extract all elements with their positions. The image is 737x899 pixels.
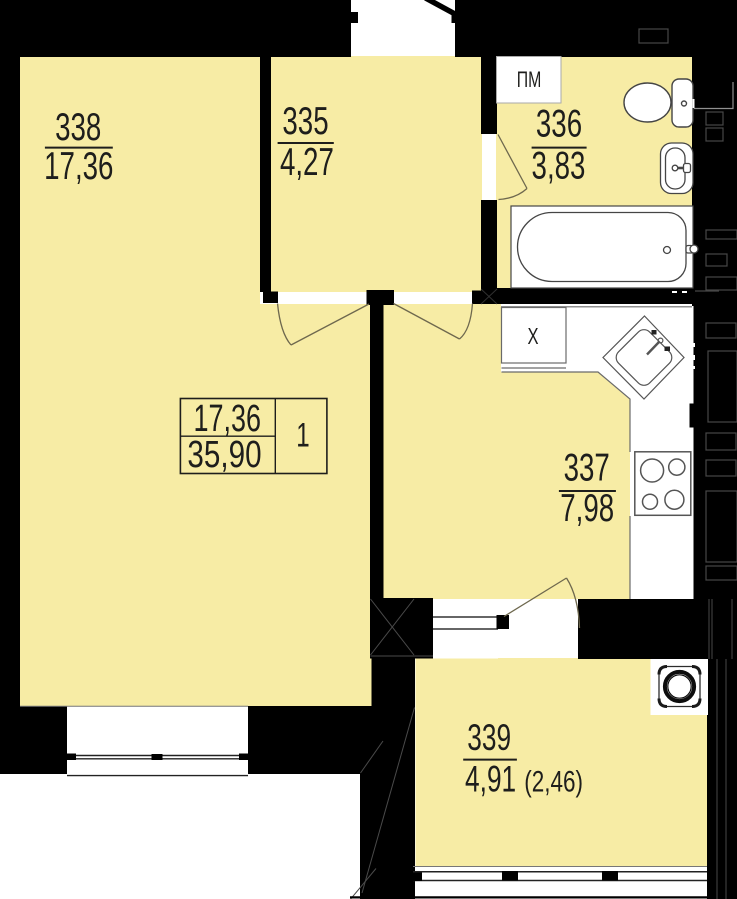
svg-text:X: X — [527, 324, 538, 349]
svg-text:ПМ: ПМ — [517, 69, 542, 93]
svg-text:1: 1 — [296, 417, 309, 455]
svg-text:339: 339 — [467, 717, 511, 759]
svg-text:337: 337 — [564, 446, 610, 490]
svg-text:3,83: 3,83 — [532, 144, 586, 188]
svg-text:7,98: 7,98 — [560, 487, 614, 531]
svg-text:17,36: 17,36 — [44, 145, 113, 189]
svg-text:4,27: 4,27 — [280, 141, 334, 185]
svg-text:4,91: 4,91 — [465, 758, 516, 800]
svg-text:338: 338 — [55, 105, 101, 149]
svg-text:335: 335 — [282, 99, 328, 143]
svg-text:35,90: 35,90 — [187, 434, 261, 476]
svg-text:336: 336 — [536, 102, 582, 146]
svg-text:(2,46): (2,46) — [524, 764, 583, 798]
